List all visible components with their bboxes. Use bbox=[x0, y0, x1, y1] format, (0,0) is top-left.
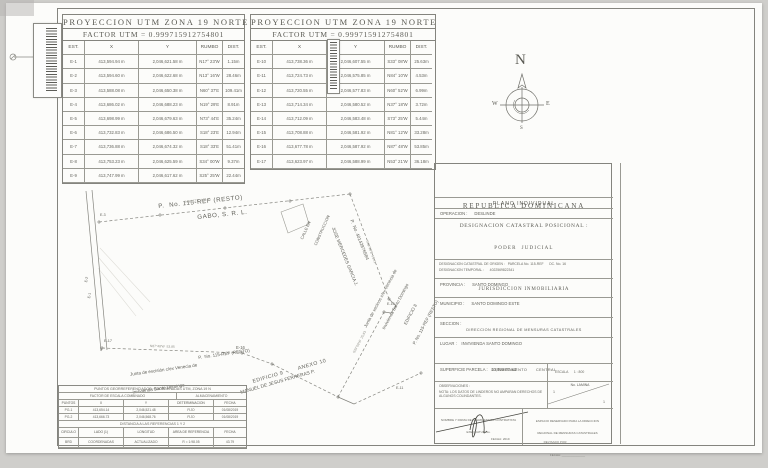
table-cell: 413,677.78 m bbox=[273, 140, 327, 154]
table-cell: 413,698.99 m bbox=[85, 112, 139, 126]
table-cell: 2,046,583.48 m bbox=[327, 112, 385, 126]
barcode-sticker-table2 bbox=[327, 39, 340, 94]
table2-title: PROYECCION UTM ZONA 19 NORTE bbox=[251, 15, 435, 29]
georef-body2: BRDCOORDENADASACTUALIZADOR = 1:98.0543.7… bbox=[59, 438, 246, 448]
table-cell: 36.18m bbox=[411, 155, 432, 169]
tb-plano: PLANO INDIVIDUAL bbox=[435, 197, 613, 208]
table-cell: X bbox=[79, 400, 124, 407]
table-cell: 413,712.09 m bbox=[273, 112, 327, 126]
table-cell: 413,594.94 m bbox=[85, 55, 139, 69]
table-cell: 2,046,581.92 m bbox=[327, 126, 385, 140]
table-cell: E-9 bbox=[63, 169, 85, 183]
table-cell: FECHA bbox=[214, 428, 246, 438]
table-cell: 53.85m bbox=[411, 140, 432, 154]
table-cell: AREA DE REFERENCIA bbox=[169, 428, 214, 438]
table-row: PG-2413,666.732,046,568.76FIJO01/08/2019 bbox=[59, 414, 246, 421]
georef-band: DISTANCIA A LAS REFERENCIAS 1 Y 2 bbox=[59, 421, 246, 428]
table-cell: E-8 bbox=[63, 155, 85, 169]
table-cell: E-10 bbox=[251, 55, 273, 69]
table-cell: E-17 bbox=[251, 155, 273, 169]
table-cell: 2,046,521.48 bbox=[124, 407, 169, 414]
table-cell: 413,588.08 m bbox=[85, 84, 139, 98]
table-cell: X bbox=[273, 41, 327, 55]
table-cell: N37° 18'W bbox=[385, 98, 411, 112]
table-cell: E-1 bbox=[63, 55, 85, 69]
tb-temporal: DESIGNACION TEMPORAL : 4022569822341 bbox=[435, 266, 613, 272]
table-cell: 33.28m bbox=[411, 126, 432, 140]
georef-sub-left: FACTOR DE ESCALA COMBINADO bbox=[59, 393, 177, 400]
table-cell: EST. bbox=[251, 41, 273, 55]
table-cell: 413,724.73 m bbox=[273, 69, 327, 83]
tb-header: REPUBLICA DOMINICANA PODER JUDICIAL JURI… bbox=[435, 164, 613, 197]
table-row: E-17413,623.97 m2,046,588.99 mN53° 21'W3… bbox=[251, 155, 435, 169]
table-cell: R = 1:98.05 bbox=[169, 438, 214, 448]
table-cell: FIJO bbox=[169, 407, 214, 414]
table-cell: N73° 44'E bbox=[197, 112, 223, 126]
table-cell: 2,046,679.63 m bbox=[139, 112, 197, 126]
table-cell: EST. bbox=[63, 41, 85, 55]
coordinate-table-2: PROYECCION UTM ZONA 19 NORTE FACTOR UTM … bbox=[250, 14, 436, 170]
georef-body: PG-1413,654.142,046,521.48FIJO01/08/2019… bbox=[59, 407, 246, 421]
table-cell: Y bbox=[124, 400, 169, 407]
table-cell: 8.91m bbox=[223, 98, 244, 112]
table-cell: 43.79 bbox=[214, 438, 246, 448]
table-cell: E-13 bbox=[251, 98, 273, 112]
tb-revisado-l1: REVISADO POR: ______________ bbox=[522, 440, 613, 444]
georef-subheader: FACTOR DE ESCALA COMBINADO ALMACENAMIENT… bbox=[59, 393, 246, 400]
table-cell: COORDENADAS bbox=[79, 438, 124, 448]
table-cell: E-3 bbox=[63, 84, 85, 98]
tb-designacion-title: DESIGNACION CATASTRAL POSICIONAL : bbox=[435, 218, 613, 259]
compass-south-label: S bbox=[520, 126, 523, 131]
table-row: BRDCOORDENADASACTUALIZADOR = 1:98.0543.7… bbox=[59, 438, 246, 448]
table-cell: 35.24m bbox=[223, 112, 244, 126]
table-cell: X bbox=[85, 41, 139, 55]
table-cell: RUMBO bbox=[197, 41, 223, 55]
table-cell: 413,686.02 m bbox=[85, 98, 139, 112]
tb-firma-h1: NOMBRE Y FIRMA DEL AGRIMENSOR CONTRATIST… bbox=[435, 418, 522, 422]
receipt-mark-icon bbox=[10, 54, 33, 60]
table-cell: PG-2 bbox=[59, 414, 79, 421]
table-cell: 2,046,686.50 m bbox=[139, 126, 197, 140]
table-cell: 28.46m bbox=[223, 69, 244, 83]
table-cell: S73° 25'W bbox=[385, 112, 411, 126]
georef-header2: CIRCULOLADO (1)LONGITUDAREA DE REFERENCI… bbox=[59, 428, 246, 438]
table2-header: EST.XYRUMBODIST. bbox=[251, 41, 435, 55]
table-cell: 9.37m bbox=[223, 155, 244, 169]
table-cell: 413,654.14 bbox=[79, 407, 124, 414]
table-cell: 12.94m bbox=[223, 126, 244, 140]
tb-firma-h2: EXEQUATUR No. bbox=[435, 430, 522, 434]
station-e3: E-3 bbox=[100, 213, 106, 217]
table-cell: 2,046,568.76 bbox=[124, 414, 169, 421]
table-row: E-11413,724.73 m2,046,575.85 mN84° 10'W4… bbox=[251, 69, 435, 83]
table-cell: FIJO bbox=[169, 414, 214, 421]
tb-nota: NOTA: LOS DATOS DE LINDEROS NO AMPARAN D… bbox=[435, 388, 547, 398]
table-cell: 2,046,622.68 m bbox=[139, 69, 197, 83]
table-cell: 109.41m bbox=[223, 84, 244, 98]
tb-divider bbox=[547, 364, 548, 381]
table-row: E-8413,753.23 m2,046,625.59 mS34° 00'W9.… bbox=[63, 155, 244, 169]
table-cell: E-2 bbox=[63, 69, 85, 83]
table-cell: 413,732.83 m bbox=[85, 126, 139, 140]
table-cell: E-15 bbox=[251, 126, 273, 140]
table-cell: DIST. bbox=[223, 41, 244, 55]
table-cell: 2,046,688.23 m bbox=[139, 98, 197, 112]
table1-factor: FACTOR UTM = 0.999715912754801 bbox=[63, 29, 244, 42]
tb-revisado-lines: REVISADO POR: ______________ FECHA: ____… bbox=[522, 431, 613, 466]
table-cell: 5.44m bbox=[411, 112, 432, 126]
table-cell: E-6 bbox=[63, 126, 85, 140]
title-block: REPUBLICA DOMINICANA PODER JUDICIAL JURI… bbox=[434, 163, 612, 444]
table-cell: 413,738.36 m bbox=[273, 55, 327, 69]
georef-header: PUNTOSXYDETERMINACIONFECHA bbox=[59, 400, 246, 407]
table-cell: 4.53m bbox=[411, 69, 432, 83]
table-cell: N81° 12'W bbox=[385, 126, 411, 140]
table-cell: 01/08/2019 bbox=[214, 407, 246, 414]
table-row: E-12413,720.55 m2,046,577.83 mN60° 52'W6… bbox=[251, 84, 435, 98]
tb-observaciones-row: OBSERVACIONES : NOTA: LOS DATOS DE LINDE… bbox=[435, 381, 613, 408]
table-cell: 25.63m bbox=[411, 55, 432, 69]
table-cell: S18° 33'E bbox=[197, 140, 223, 154]
table-cell: DETERMINACION bbox=[169, 400, 214, 407]
table-cell: N84° 10'W bbox=[385, 69, 411, 83]
table-cell: 2,046,650.38 m bbox=[139, 84, 197, 98]
table-cell: S25° 25'W bbox=[197, 169, 223, 183]
table-cell: PUNTOS bbox=[59, 400, 79, 407]
table-cell: E-12 bbox=[251, 84, 273, 98]
table-cell: RUMBO bbox=[385, 41, 411, 55]
table-cell: 22.44m bbox=[223, 169, 244, 183]
course-label-4: N87°48'W 53.85 bbox=[150, 344, 175, 349]
table-cell: E-16 bbox=[251, 140, 273, 154]
table-cell: 2,046,588.99 m bbox=[327, 155, 385, 169]
calle-label-line1: CALLE EN bbox=[299, 208, 317, 240]
compass-east-label: E bbox=[546, 101, 550, 107]
table-cell: E-5 bbox=[63, 112, 85, 126]
table-row: E-7413,736.88 m2,046,674.32 mS18° 33'E51… bbox=[63, 140, 244, 154]
compass-rose-icon bbox=[500, 74, 544, 123]
table-cell: N13° 16'W bbox=[197, 69, 223, 83]
tb-lamina-bottom: 1 bbox=[603, 400, 605, 404]
table1-header: EST.XYRUMBODIST. bbox=[63, 41, 244, 55]
barcode-sticker-left bbox=[33, 23, 62, 98]
table-cell: CIRCULO bbox=[59, 428, 79, 438]
table-cell: 413,623.97 m bbox=[273, 155, 327, 169]
tb-revisado-l2: FECHA: ______________ bbox=[522, 453, 613, 457]
barcode-icon bbox=[46, 28, 57, 92]
table-cell: 413,720.55 m bbox=[273, 84, 327, 98]
table-row: E-4413,686.02 m2,046,688.23 mN19° 29'E8.… bbox=[63, 98, 244, 112]
table-cell: E-14 bbox=[251, 112, 273, 126]
station-e17: E-17 bbox=[104, 339, 112, 343]
table-cell: 413,594.60 m bbox=[85, 69, 139, 83]
table-row: E-15413,708.88 m2,046,581.92 mN81° 12'W3… bbox=[251, 126, 435, 140]
tb-provincia: PROVINCIA : SANTO DOMINGO bbox=[435, 278, 613, 297]
table-row: E-3413,588.08 m2,046,650.38 mN60° 37'E10… bbox=[63, 84, 244, 98]
table-cell: LONGITUD bbox=[124, 428, 169, 438]
tb-signature-row: NOMBRE Y FIRMA DEL AGRIMENSOR CONTRATIST… bbox=[435, 408, 613, 445]
coordinate-table-1: PROYECCION UTM ZONA 19 NORTE FACTOR UTM … bbox=[62, 14, 245, 184]
table-cell: E-4 bbox=[63, 98, 85, 112]
table-cell: E-7 bbox=[63, 140, 85, 154]
table-cell: S18° 23'E bbox=[197, 126, 223, 140]
station-e10: E-10 bbox=[387, 302, 395, 306]
table1-body: E-1413,594.94 m2,046,621.58 mN17° 23'W1.… bbox=[63, 55, 244, 183]
table-cell: 51.41m bbox=[223, 140, 244, 154]
table-cell: N60° 37'E bbox=[197, 84, 223, 98]
tb-superficie-row: SUPERFICIE PARCELA : 10,029.97 m2 ESCALA… bbox=[435, 363, 613, 381]
table-row: E-6413,732.83 m2,046,686.50 mS18° 23'E12… bbox=[63, 126, 244, 140]
table-cell: 413,736.88 m bbox=[85, 140, 139, 154]
georef-table: PUNTOS GEORREFERENCIADOS: COORDENADAS UT… bbox=[58, 385, 247, 449]
table-cell: 413,714.34 m bbox=[273, 98, 327, 112]
table-cell: S33° 08'W bbox=[385, 55, 411, 69]
table-row: E-2413,594.60 m2,046,622.68 mN13° 16'W28… bbox=[63, 69, 244, 83]
georef-title: PUNTOS GEORREFERENCIADOS: COORDENADAS UT… bbox=[59, 386, 246, 393]
table-row: E-9413,747.99 m2,046,617.62 mS25° 25'W22… bbox=[63, 169, 244, 183]
table-cell: 01/08/2019 bbox=[214, 414, 246, 421]
tb-operacion: OPERACION : DESLINDE bbox=[435, 208, 613, 218]
table2-factor: FACTOR UTM = 0.999715912754801 bbox=[251, 29, 435, 42]
table-cell: N60° 52'W bbox=[385, 84, 411, 98]
table-cell: N87° 48'W bbox=[385, 140, 411, 154]
table-cell: FECHA bbox=[214, 400, 246, 407]
table-cell: Y bbox=[139, 41, 197, 55]
table-cell: E-11 bbox=[251, 69, 273, 83]
table-row: E-1413,594.94 m2,046,621.58 mN17° 23'W1.… bbox=[63, 55, 244, 69]
barcode-icon bbox=[330, 42, 337, 90]
table-cell: 413,753.23 m bbox=[85, 155, 139, 169]
tb-lugar: LUGAR : INVIVIENDA SANTO DOMINGO bbox=[435, 337, 613, 363]
table-cell: 3.72m bbox=[411, 98, 432, 112]
table-cell: 2,046,674.32 m bbox=[139, 140, 197, 154]
tb-lamina-label: No. LAMINA bbox=[547, 383, 613, 387]
tb-municipio: MUNICIPIO : SANTO DOMINGO ESTE bbox=[435, 297, 613, 317]
georef-sub-right: ALMACENAMIENTO bbox=[177, 393, 246, 400]
tb-firma-fecha: FECHA: 2019 bbox=[491, 437, 510, 441]
table-cell: 1.15m bbox=[223, 55, 244, 69]
table-cell: LADO (1) bbox=[79, 428, 124, 438]
compass-west-label: W bbox=[492, 101, 498, 107]
table-row: PG-1413,654.142,046,521.48FIJO01/08/2019 bbox=[59, 407, 246, 414]
table-cell: 2,046,617.62 m bbox=[139, 169, 197, 183]
tb-revisado-h1: ESPACIO RESERVADO PARA LA DIRECCION bbox=[522, 419, 613, 423]
table-row: E-16413,677.78 m2,046,587.92 mN87° 48'W5… bbox=[251, 140, 435, 154]
table-cell: 2,046,580.52 m bbox=[327, 98, 385, 112]
table-cell: N53° 21'W bbox=[385, 155, 411, 169]
table-cell: DIST. bbox=[411, 41, 432, 55]
tb-seccion: SECCION : bbox=[435, 317, 613, 337]
table-cell: S34° 00'W bbox=[197, 155, 223, 169]
table-cell: 2,046,621.58 m bbox=[139, 55, 197, 69]
scan-faint-lines bbox=[98, 248, 150, 316]
table-cell: 413,666.73 bbox=[79, 414, 124, 421]
tb-superficie: SUPERFICIE PARCELA : 10,029.97 m2 bbox=[435, 364, 550, 372]
table-cell: 413,747.99 m bbox=[85, 169, 139, 183]
table-cell: ACTUALIZADO bbox=[124, 438, 169, 448]
table-cell: PG-1 bbox=[59, 407, 79, 414]
table-cell: BRD bbox=[59, 438, 79, 448]
table-cell: N17° 23'W bbox=[197, 55, 223, 69]
table-row: E-13413,714.34 m2,046,580.52 mN37° 18'W3… bbox=[251, 98, 435, 112]
tb-lamina-top: 1 bbox=[553, 390, 555, 394]
table-row: E-5413,698.99 m2,046,679.63 mN73° 44'E35… bbox=[63, 112, 244, 126]
table1-title: PROYECCION UTM ZONA 19 NORTE bbox=[63, 15, 244, 29]
table-cell: 2,046,587.92 m bbox=[327, 140, 385, 154]
compass-north-label: N bbox=[515, 52, 526, 69]
table-cell: 2,046,625.59 m bbox=[139, 155, 197, 169]
table-row: E-14413,712.09 m2,046,583.48 mS73° 25'W5… bbox=[251, 112, 435, 126]
table-cell: 413,708.88 m bbox=[273, 126, 327, 140]
station-e11: E-11 bbox=[396, 386, 403, 390]
table-cell: 6.99m bbox=[411, 84, 432, 98]
table2-body: E-10413,738.36 m2,046,607.55 mS33° 08'W2… bbox=[251, 55, 435, 169]
station-e16: E-16 bbox=[236, 345, 245, 350]
tb-escala: ESCALA 1 : 800 bbox=[551, 368, 584, 374]
table-row: E-10413,738.36 m2,046,607.55 mS33° 08'W2… bbox=[251, 55, 435, 69]
junta-bottom-line1: Junta de escisión c/ex Venecia de bbox=[130, 362, 198, 377]
tb-origen-row: DESIGNACION CATASTRAL DE ORIGEN : PARCEL… bbox=[435, 259, 613, 278]
table-cell: N19° 29'E bbox=[197, 98, 223, 112]
